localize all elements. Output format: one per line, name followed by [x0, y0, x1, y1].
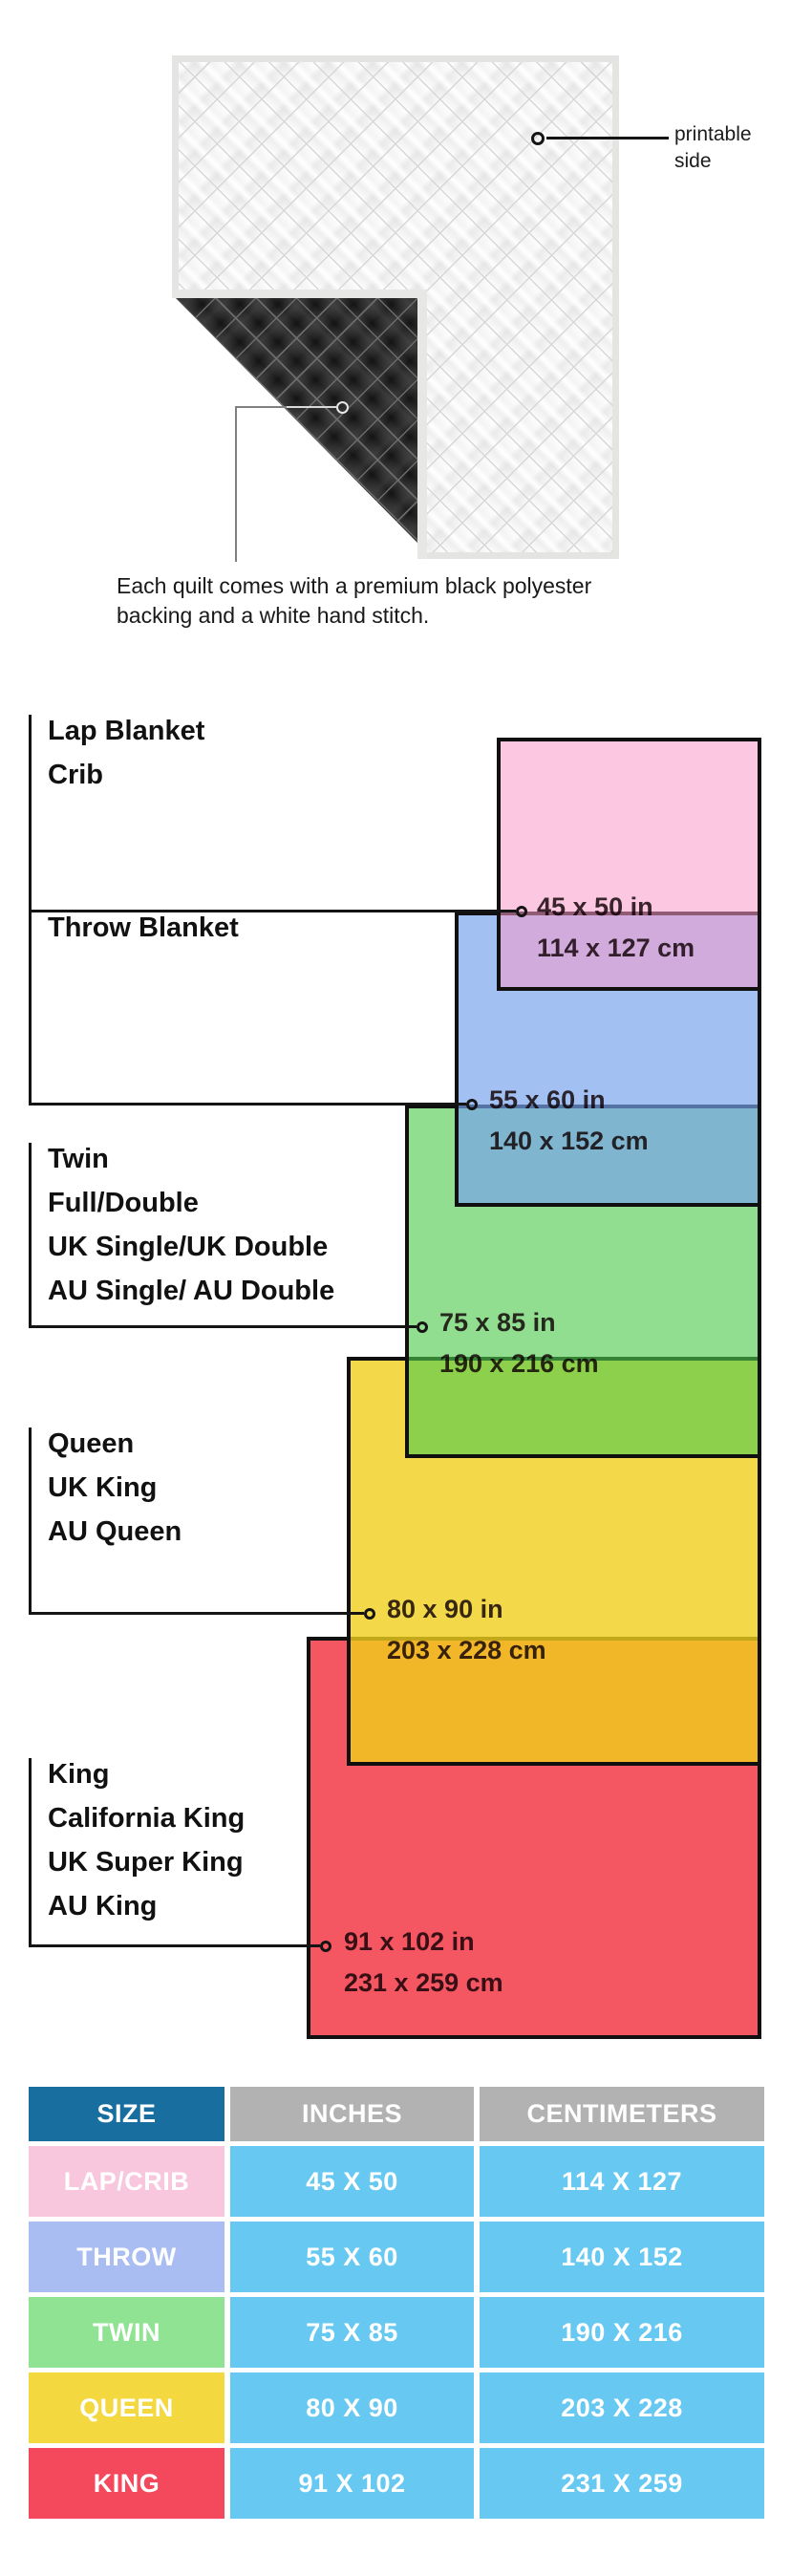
measure-king-inches: 91 x 102 in — [344, 1921, 503, 1963]
callout-hline-king — [29, 1944, 320, 1947]
label-king-line1: King — [48, 1752, 245, 1796]
printable-side-marker-icon — [531, 132, 545, 145]
measure-twin: 75 x 85 in 190 x 216 cm — [439, 1302, 599, 1385]
table-row-queen-cm: 203 X 228 — [480, 2372, 764, 2443]
label-throw: Throw Blanket — [48, 906, 239, 950]
measure-lap-cm: 114 x 127 cm — [537, 928, 695, 969]
callout-hline-twin — [29, 1325, 417, 1328]
backing-callout-line-on-black — [287, 406, 336, 408]
measure-queen-cm: 203 x 228 cm — [387, 1630, 546, 1671]
table-row-twin-size: TWIN — [29, 2297, 224, 2368]
backing-marker-icon — [336, 401, 349, 414]
callout-vline-throw — [29, 912, 32, 1105]
measure-queen-inches: 80 x 90 in — [387, 1589, 546, 1630]
callout-dot-throw-icon — [466, 1099, 478, 1110]
callout-hline-throw — [29, 1103, 466, 1106]
table-row-lap-inches: 45 X 50 — [230, 2146, 474, 2217]
label-queen-line3: AU Queen — [48, 1510, 182, 1554]
callout-vline-queen — [29, 1428, 32, 1613]
measure-twin-cm: 190 x 216 cm — [439, 1343, 599, 1385]
measure-throw-inches: 55 x 60 in — [489, 1080, 649, 1121]
label-king-line2: California King — [48, 1796, 245, 1840]
quilt-size-infographic: printable side Each quilt comes with a p… — [0, 0, 791, 2576]
label-king-line3: UK Super King — [48, 1840, 245, 1884]
printable-side-callout-line — [546, 137, 669, 140]
measure-throw: 55 x 60 in 140 x 152 cm — [489, 1080, 649, 1162]
callout-dot-queen-icon — [364, 1608, 375, 1620]
measure-lap: 45 x 50 in 114 x 127 cm — [537, 887, 695, 969]
printable-side-label: printable side — [674, 121, 784, 175]
label-twin-line1: Twin — [48, 1137, 334, 1181]
quilt-fold-binding-side — [417, 290, 427, 559]
measure-twin-inches: 75 x 85 in — [439, 1302, 599, 1343]
label-twin-line4: AU Single/ AU Double — [48, 1269, 334, 1313]
label-twin-line2: Full/Double — [48, 1181, 334, 1225]
table-row-twin-cm: 190 X 216 — [480, 2297, 764, 2368]
quilt-caption-line1: Each quilt comes with a premium black po… — [117, 571, 709, 601]
callout-vline-king — [29, 1758, 32, 1945]
printable-side-label-line2: side — [674, 148, 784, 175]
table-row-lap-size: LAP/CRIB — [29, 2146, 224, 2217]
table-row-queen-size: QUEEN — [29, 2372, 224, 2443]
label-lap-line1: Lap Blanket — [48, 709, 204, 753]
quilt-caption: Each quilt comes with a premium black po… — [117, 571, 709, 631]
measure-queen: 80 x 90 in 203 x 228 cm — [387, 1589, 546, 1671]
label-queen-line1: Queen — [48, 1422, 182, 1466]
callout-vline-lap — [29, 715, 32, 912]
table-row-twin-inches: 75 X 85 — [230, 2297, 474, 2368]
label-lap-line2: Crib — [48, 753, 204, 797]
callout-vline-twin — [29, 1143, 32, 1327]
backing-callout-line-vertical — [235, 406, 237, 562]
label-king-line4: AU King — [48, 1884, 245, 1928]
label-lap: Lap Blanket Crib — [48, 709, 204, 797]
table-row-throw-size: THROW — [29, 2222, 224, 2292]
label-queen: Queen UK King AU Queen — [48, 1422, 182, 1554]
callout-dot-king-icon — [320, 1941, 331, 1952]
table-row-king-cm: 231 X 259 — [480, 2448, 764, 2519]
table-header-size: SIZE — [29, 2087, 224, 2141]
table-row-queen-inches: 80 X 90 — [230, 2372, 474, 2443]
measure-king: 91 x 102 in 231 x 259 cm — [344, 1921, 503, 2004]
backing-callout-line-horizontal — [235, 406, 287, 408]
table-header-inches: INCHES — [230, 2087, 474, 2141]
measure-lap-inches: 45 x 50 in — [537, 887, 695, 928]
table-row-throw-cm: 140 X 152 — [480, 2222, 764, 2292]
table-row-throw-inches: 55 X 60 — [230, 2222, 474, 2292]
quilt-caption-line2: backing and a white hand stitch. — [117, 601, 709, 631]
label-king: King California King UK Super King AU Ki… — [48, 1752, 245, 1928]
label-queen-line2: UK King — [48, 1466, 182, 1510]
label-throw-line1: Throw Blanket — [48, 906, 239, 950]
measure-king-cm: 231 x 259 cm — [344, 1963, 503, 2004]
printable-side-label-line1: printable — [674, 121, 784, 148]
callout-hline-queen — [29, 1612, 364, 1615]
measure-throw-cm: 140 x 152 cm — [489, 1121, 649, 1162]
table-row-king-size: KING — [29, 2448, 224, 2519]
table-row-lap-cm: 114 X 127 — [480, 2146, 764, 2217]
quilt-fold-binding-top — [172, 290, 423, 298]
callout-dot-lap-icon — [516, 906, 527, 917]
label-twin: Twin Full/Double UK Single/UK Double AU … — [48, 1137, 334, 1313]
callout-dot-twin-icon — [417, 1321, 428, 1333]
label-twin-line3: UK Single/UK Double — [48, 1225, 334, 1269]
table-header-centimeters: CENTIMETERS — [480, 2087, 764, 2141]
table-row-king-inches: 91 X 102 — [230, 2448, 474, 2519]
